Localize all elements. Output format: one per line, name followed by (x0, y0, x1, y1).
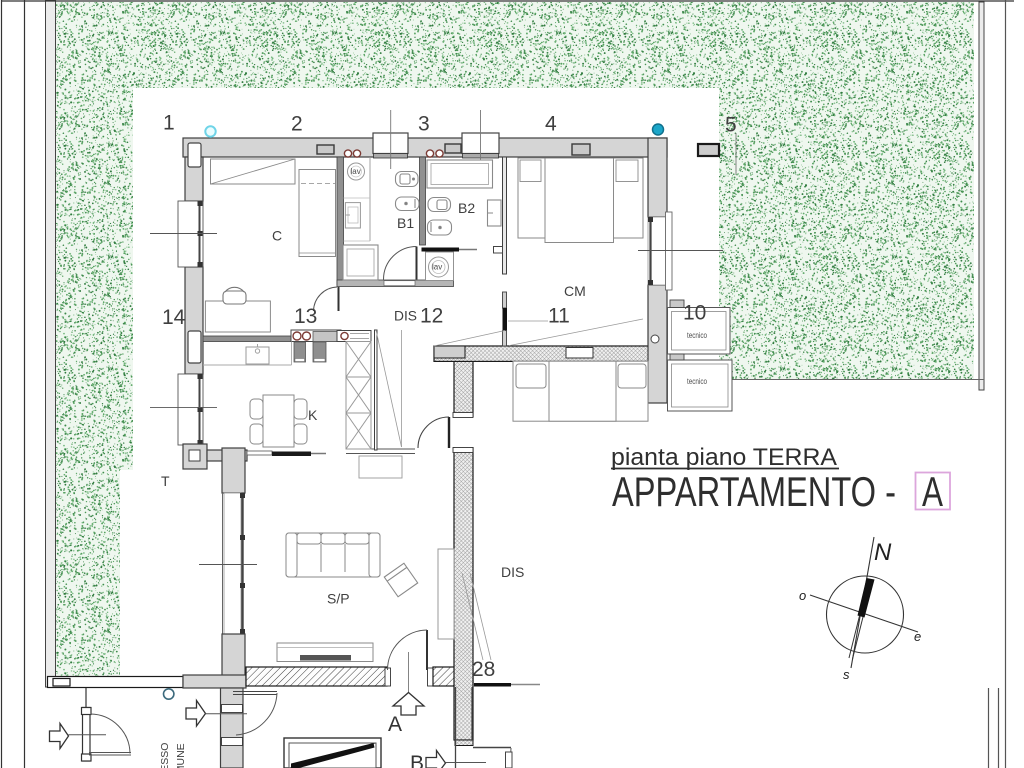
svg-text:INGRESSO: INGRESSO (159, 743, 171, 768)
svg-text:B1: B1 (397, 215, 414, 231)
svg-text:A: A (388, 713, 402, 736)
svg-text:5: 5 (725, 114, 737, 137)
svg-text:14: 14 (162, 306, 186, 329)
svg-text:11: 11 (548, 305, 570, 328)
svg-text:10: 10 (683, 302, 706, 325)
svg-text:tecnico: tecnico (687, 377, 707, 386)
svg-text:K: K (308, 407, 318, 423)
svg-text:APPARTAMENTO -: APPARTAMENTO - (612, 468, 896, 515)
svg-text:1: 1 (163, 112, 175, 135)
svg-text:T: T (161, 473, 170, 489)
svg-text:B: B (410, 752, 424, 768)
svg-text:CM: CM (564, 283, 586, 299)
svg-text:13: 13 (294, 305, 317, 328)
svg-text:o: o (799, 588, 806, 603)
svg-text:S/P: S/P (327, 591, 350, 607)
svg-text:12: 12 (420, 305, 443, 328)
svg-text:C: C (272, 228, 282, 244)
svg-text:tecnico: tecnico (687, 331, 707, 340)
svg-text:28: 28 (472, 658, 495, 681)
svg-text:pianta piano TERRA: pianta piano TERRA (611, 444, 837, 471)
svg-text:DIS: DIS (394, 308, 417, 324)
svg-text:lav: lav (351, 167, 361, 176)
svg-text:e: e (914, 629, 921, 644)
svg-text:2: 2 (291, 113, 303, 136)
svg-text:COMUNE: COMUNE (175, 743, 187, 768)
svg-text:DIS: DIS (501, 564, 524, 580)
svg-text:4: 4 (545, 113, 557, 136)
svg-text:B2: B2 (458, 200, 475, 216)
svg-text:s: s (843, 667, 850, 682)
svg-text:A: A (922, 468, 943, 515)
svg-text:3: 3 (418, 113, 430, 136)
svg-text:lav: lav (432, 263, 442, 272)
svg-text:N: N (874, 539, 892, 566)
